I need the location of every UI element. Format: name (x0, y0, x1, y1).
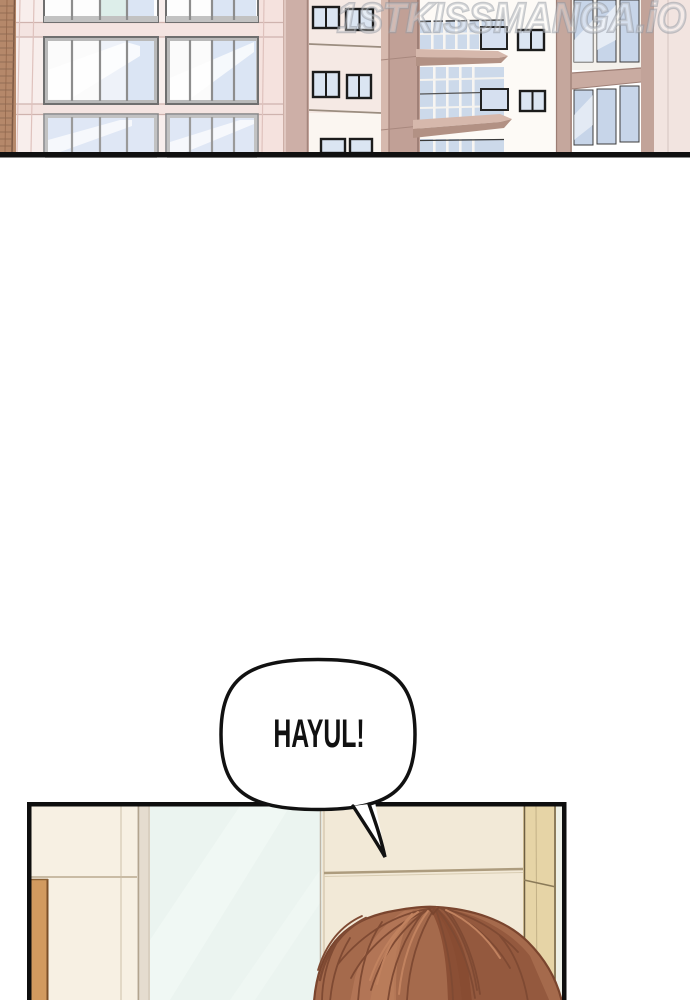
svg-text:HAYUL!: HAYUL! (273, 712, 364, 756)
svg-text:1STKISSMANGA.iO: 1STKISSMANGA.iO (337, 0, 686, 41)
